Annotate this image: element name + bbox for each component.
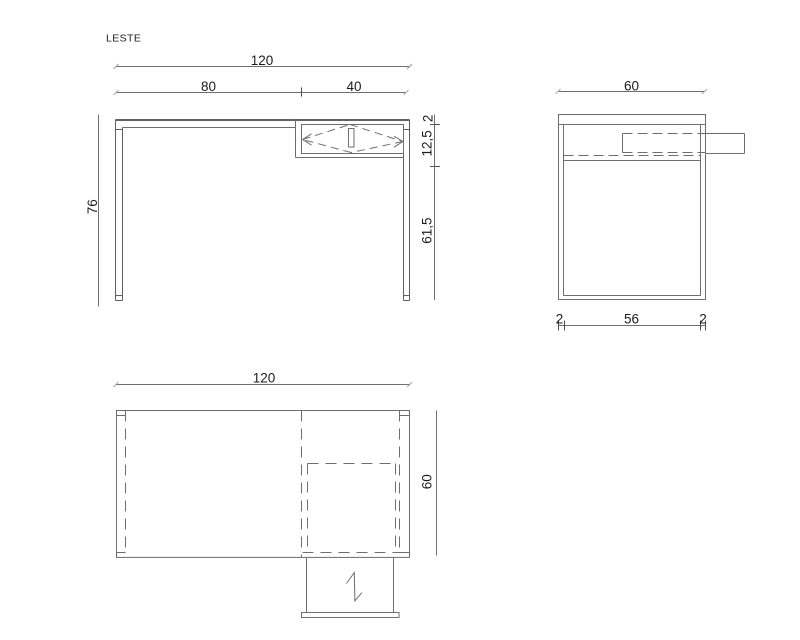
- svg-text:60: 60: [624, 78, 639, 93]
- svg-text:56: 56: [624, 312, 639, 327]
- svg-text:80: 80: [201, 79, 216, 94]
- svg-text:LESTE: LESTE: [106, 33, 141, 45]
- svg-text:2: 2: [556, 312, 564, 327]
- svg-text:40: 40: [346, 79, 361, 94]
- svg-text:2: 2: [699, 312, 707, 327]
- svg-text:61,5: 61,5: [420, 217, 435, 243]
- svg-text:76: 76: [85, 199, 100, 214]
- svg-text:2: 2: [421, 115, 436, 123]
- svg-text:120: 120: [253, 371, 276, 386]
- svg-text:120: 120: [251, 53, 274, 68]
- svg-text:12,5: 12,5: [420, 130, 435, 156]
- svg-text:60: 60: [420, 474, 435, 489]
